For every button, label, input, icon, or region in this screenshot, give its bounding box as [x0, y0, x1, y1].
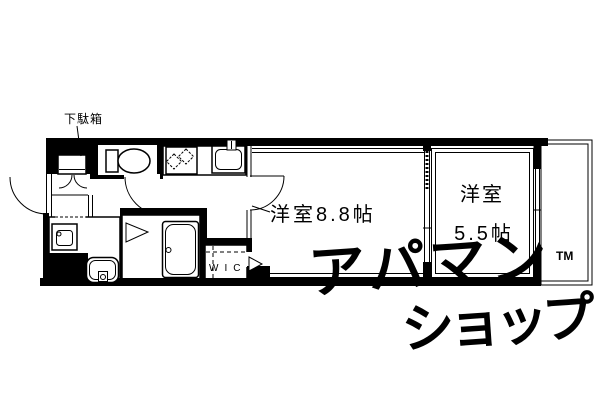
shoe-cabinet [58, 155, 86, 174]
left-wall-lower [43, 213, 49, 286]
wic-label: WIC [209, 263, 246, 274]
toilet-icon [106, 149, 150, 173]
washbasin-icon [52, 224, 77, 250]
floor-plan-svg: アパマン TM ショップ [0, 0, 600, 400]
room-small-label-line2: 5.5帖 [454, 222, 514, 245]
watermark-tm: TM [556, 249, 573, 263]
room-small-label-line1: 洋室 [460, 183, 504, 206]
washing-machine-icon [166, 147, 197, 174]
partition-wall-bottom [423, 262, 431, 279]
vanity-sink-icon [87, 258, 119, 283]
partition-wall-top [423, 146, 431, 151]
room-large-label: 洋室8.8帖 [270, 203, 376, 226]
right-wall-bottom [534, 253, 542, 279]
right-wall-top [534, 146, 542, 169]
shoe-cabinet-label: 下駄箱 [64, 111, 103, 126]
floor-plan-image: アパマン TM ショップ [0, 0, 600, 400]
bathtub-icon [163, 222, 199, 278]
toilet-door-gap [124, 174, 160, 180]
